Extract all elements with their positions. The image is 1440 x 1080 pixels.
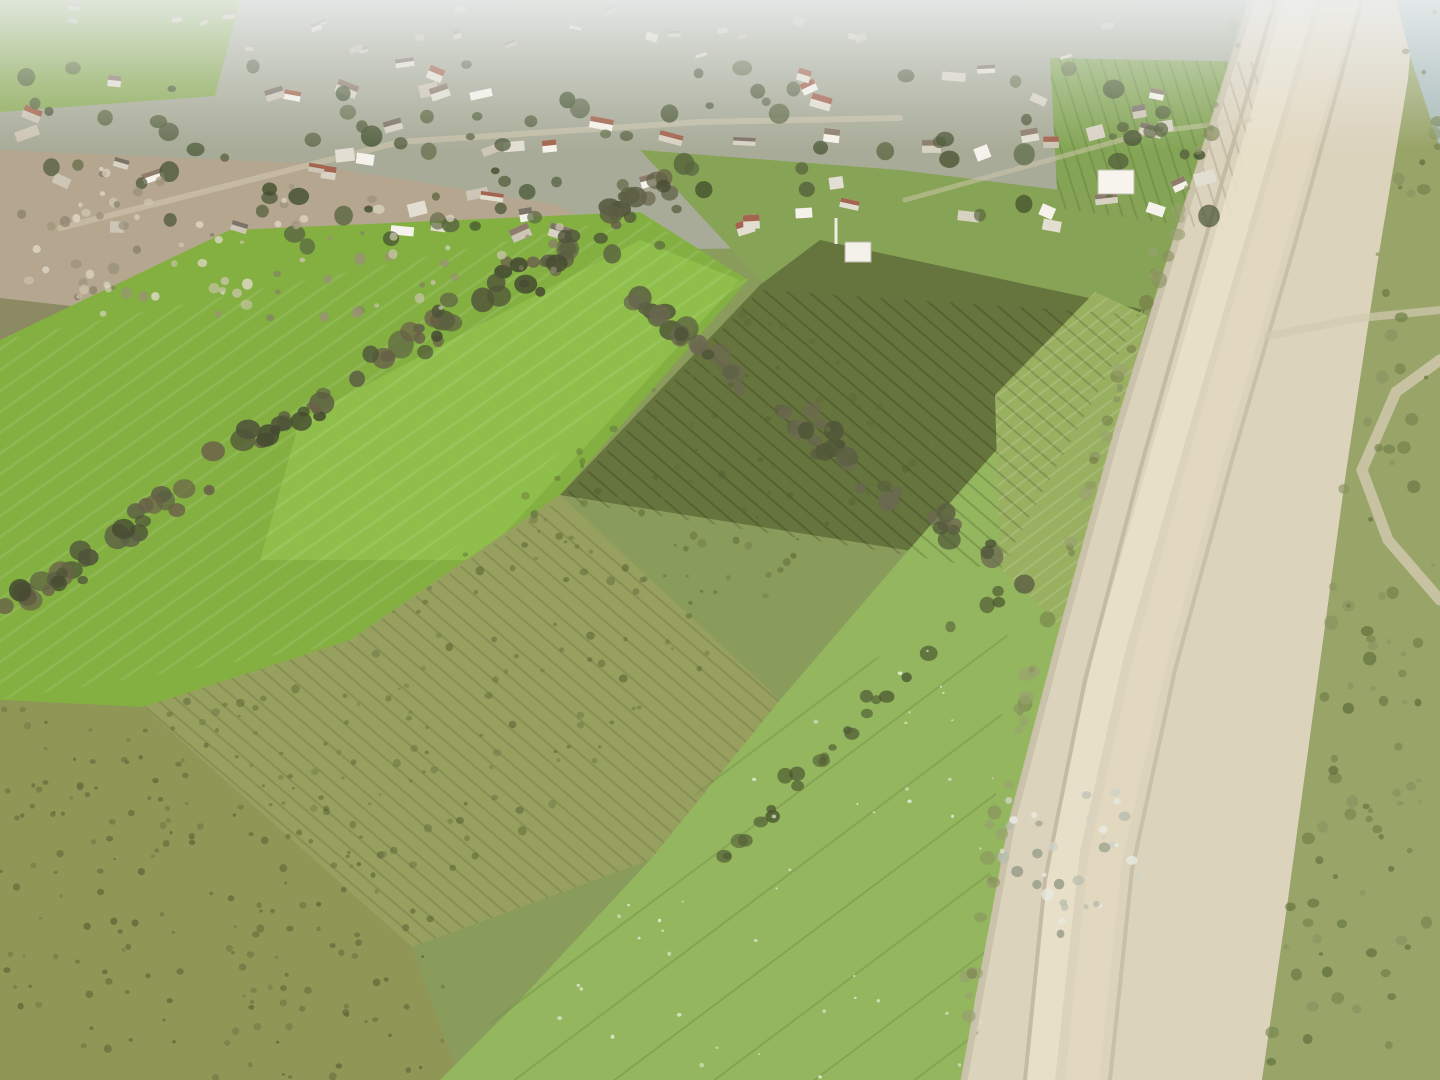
vegetation-blob — [152, 778, 158, 783]
vegetation-blob — [252, 705, 258, 711]
vegetation-blob — [765, 572, 771, 578]
vegetation-blob — [731, 834, 748, 848]
vegetation-blob — [121, 948, 125, 952]
vegetation-blob — [100, 311, 107, 317]
vegetation-blob — [1312, 934, 1322, 943]
vegetation-blob — [440, 259, 450, 267]
vegetation-blob — [920, 646, 938, 661]
vegetation-blob — [20, 813, 24, 817]
vegetation-blob — [1386, 639, 1391, 644]
vegetation-blob — [112, 519, 135, 539]
vegetation-blob — [357, 703, 360, 707]
vegetation-blob — [548, 800, 556, 809]
vegetation-blob — [165, 806, 171, 811]
vegetation-blob — [527, 211, 542, 224]
vegetation-blob — [1073, 875, 1084, 885]
vegetation-blob — [390, 847, 398, 854]
vegetation-blob — [1089, 457, 1098, 465]
vegetation-blob — [813, 754, 831, 767]
vegetation-blob — [1379, 834, 1384, 840]
vegetation-blob — [299, 902, 306, 909]
vegetation-blob — [521, 542, 528, 547]
vegetation-blob — [624, 211, 636, 222]
vegetation-blob — [185, 802, 189, 805]
vegetation-blob — [178, 242, 184, 247]
vegetation-blob — [713, 590, 718, 594]
vegetation-blob — [554, 476, 561, 481]
vegetation-blob — [114, 201, 120, 208]
vegetation-blob — [587, 657, 592, 662]
vegetation-blob — [292, 221, 301, 230]
vegetation-blob — [288, 1075, 292, 1078]
vegetation-blob — [352, 953, 359, 959]
vegetation-blob — [898, 672, 903, 675]
vegetation-blob — [189, 833, 195, 840]
vegetation-blob — [431, 766, 438, 773]
vegetation-blob — [778, 343, 785, 349]
vegetation-blob — [974, 912, 987, 922]
vegetation-blob — [866, 420, 874, 426]
vegetation-blob — [406, 1067, 412, 1073]
vegetation-blob — [718, 471, 726, 479]
house — [743, 214, 760, 229]
vegetation-blob — [589, 550, 594, 555]
vegetation-blob — [18, 1003, 24, 1010]
vegetation-blob — [563, 577, 569, 582]
vegetation-blob — [89, 759, 95, 764]
vegetation-blob — [464, 802, 468, 806]
vegetation-blob — [316, 902, 321, 907]
vegetation-blob — [9, 579, 32, 602]
vegetation-blob — [336, 750, 341, 755]
vegetation-blob — [1366, 948, 1377, 957]
vegetation-blob — [30, 863, 36, 868]
vegetation-blob — [364, 1020, 367, 1023]
vegetation-blob — [958, 1063, 961, 1066]
vegetation-blob — [138, 755, 143, 760]
vegetation-blob — [1099, 842, 1111, 852]
vegetation-blob — [623, 637, 627, 641]
vegetation-blob — [310, 805, 317, 812]
vegetation-blob — [1379, 696, 1389, 706]
vegetation-blob — [487, 274, 506, 292]
vegetation-blob — [147, 796, 151, 800]
vegetation-blob — [72, 159, 83, 170]
vegetation-blob — [210, 233, 215, 237]
vegetation-blob — [577, 712, 584, 719]
vegetation-blob — [1110, 788, 1120, 796]
vegetation-blob — [133, 187, 143, 196]
vegetation-blob — [162, 1019, 166, 1022]
vegetation-blob — [42, 780, 48, 785]
vegetation-blob — [78, 202, 83, 207]
vegetation-blob — [966, 967, 977, 978]
vegetation-blob — [173, 479, 195, 498]
vegetation-blob — [637, 706, 642, 710]
vegetation-blob — [682, 901, 684, 903]
vegetation-blob — [825, 521, 830, 526]
vegetation-blob — [493, 749, 502, 756]
vegetation-blob — [638, 509, 645, 516]
vegetation-blob — [1324, 615, 1338, 630]
vegetation-blob — [1042, 873, 1046, 877]
vegetation-blob — [877, 999, 880, 1003]
vegetation-blob — [1108, 153, 1129, 170]
vegetation-blob — [125, 990, 130, 994]
vegetation-blob — [791, 781, 804, 792]
vegetation-blob — [374, 889, 378, 894]
vegetation-blob — [334, 206, 353, 226]
vegetation-blob — [677, 1013, 682, 1017]
vegetation-blob — [102, 169, 111, 178]
vegetation-blob — [995, 828, 1008, 839]
vegetation-blob — [726, 575, 731, 580]
vegetation-blob — [1385, 1041, 1393, 1049]
vegetation-blob — [962, 1009, 976, 1022]
vegetation-blob — [164, 213, 177, 227]
vegetation-blob — [1303, 918, 1314, 927]
vegetation-blob — [232, 288, 242, 297]
vegetation-blob — [1387, 993, 1396, 1000]
vegetation-blob — [76, 294, 82, 299]
vegetation-blob — [683, 546, 689, 552]
vegetation-blob — [752, 778, 756, 781]
vegetation-blob — [908, 459, 917, 467]
vegetation-blob — [1366, 635, 1376, 643]
vegetation-blob — [557, 1016, 562, 1020]
vegetation-blob — [535, 287, 545, 297]
vegetation-blob — [822, 1009, 826, 1013]
vegetation-blob — [771, 465, 775, 469]
vegetation-blob — [495, 203, 507, 214]
vegetation-blob — [940, 686, 942, 688]
vegetation-blob — [661, 930, 664, 932]
vegetation-blob — [796, 538, 799, 540]
vegetation-blob — [1395, 312, 1408, 322]
vegetation-blob — [1362, 804, 1369, 809]
vegetation-blob — [138, 291, 149, 302]
vegetation-blob — [577, 722, 584, 729]
vegetation-blob — [276, 1041, 279, 1044]
vegetation-blob — [1291, 968, 1302, 980]
vegetation-blob — [594, 233, 608, 244]
vegetation-blob — [409, 779, 412, 782]
vegetation-blob — [484, 692, 492, 699]
vegetation-blob — [1395, 363, 1406, 374]
vegetation-blob — [451, 273, 459, 281]
vegetation-blob — [102, 970, 108, 974]
vegetation-blob — [848, 498, 855, 506]
vegetation-blob — [201, 441, 225, 461]
vegetation-blob — [989, 878, 995, 884]
vegetation-blob — [1151, 272, 1167, 289]
vegetation-blob — [641, 191, 656, 205]
vegetation-blob — [285, 834, 291, 840]
vegetation-blob — [97, 868, 104, 873]
vegetation-blob — [525, 235, 530, 239]
vegetation-blob — [232, 1027, 239, 1035]
vegetation-blob — [1407, 190, 1416, 198]
vegetation-blob — [1388, 866, 1394, 872]
vegetation-blob — [1009, 816, 1018, 824]
vegetation-blob — [1086, 816, 1094, 823]
vegetation-blob — [1112, 363, 1128, 377]
vegetation-blob — [97, 889, 104, 895]
vegetation-blob — [204, 743, 209, 748]
vegetation-blob — [316, 927, 320, 932]
vegetation-blob — [24, 722, 31, 729]
vegetation-blob — [684, 449, 690, 453]
vegetation-blob — [425, 750, 429, 754]
vegetation-blob — [166, 711, 173, 716]
vegetation-blob — [445, 245, 450, 250]
vegetation-blob — [685, 613, 692, 619]
vegetation-blob — [341, 776, 345, 779]
vegetation-blob — [945, 621, 955, 632]
vegetation-blob — [1381, 969, 1391, 977]
vegetation-blob — [553, 750, 557, 753]
vegetation-blob — [415, 293, 425, 303]
vegetation-blob — [299, 258, 305, 263]
vegetation-blob — [835, 360, 840, 364]
vegetation-blob — [765, 416, 772, 422]
vegetation-blob — [980, 1021, 982, 1023]
vegetation-blob — [1031, 812, 1037, 818]
vegetation-blob — [1401, 651, 1407, 657]
vegetation-blob — [699, 1063, 704, 1068]
vegetation-blob — [617, 914, 620, 918]
vegetation-blob — [510, 257, 528, 272]
vegetation-blob — [1019, 717, 1029, 727]
vegetation-blob — [803, 402, 821, 419]
vegetation-blob — [286, 926, 293, 932]
vegetation-blob — [491, 167, 500, 174]
vegetation-blob — [14, 815, 20, 820]
vegetation-blob — [818, 1075, 822, 1078]
vegetation-blob — [220, 154, 229, 162]
vegetation-blob — [42, 266, 49, 273]
vegetation-blob — [431, 331, 443, 342]
vegetation-blob — [1032, 849, 1043, 859]
vegetation-blob — [280, 985, 287, 991]
vegetation-blob — [248, 1062, 253, 1067]
vegetation-blob — [633, 588, 640, 595]
vegetation-blob — [537, 530, 540, 533]
vegetation-blob — [288, 188, 309, 205]
vegetation-blob — [1, 707, 8, 713]
vegetation-blob — [360, 231, 364, 235]
vegetation-blob — [247, 951, 255, 957]
vegetation-blob — [464, 835, 470, 841]
vegetation-blob — [518, 826, 527, 835]
vegetation-blob — [233, 925, 237, 928]
vegetation-blob — [1057, 930, 1065, 938]
vegetation-blob — [1082, 791, 1091, 799]
vegetation-blob — [89, 1026, 93, 1030]
vegetation-blob — [652, 388, 656, 392]
vegetation-blob — [410, 908, 415, 913]
vegetation-blob — [172, 931, 176, 934]
vegetation-blob — [346, 855, 350, 858]
vegetation-blob — [1343, 703, 1354, 714]
vegetation-blob — [336, 1063, 343, 1068]
vegetation-blob — [580, 500, 587, 507]
vegetation-blob — [744, 319, 751, 327]
vegetation-blob — [61, 812, 65, 816]
vegetation-blob — [463, 552, 468, 556]
vegetation-blob — [758, 1053, 760, 1055]
vegetation-blob — [70, 260, 81, 269]
vegetation-blob — [1184, 185, 1190, 190]
vegetation-blob — [844, 728, 859, 740]
vegetation-blob — [671, 647, 674, 650]
vegetation-blob — [514, 275, 537, 294]
vegetation-blob — [105, 978, 112, 985]
vegetation-blob — [901, 672, 911, 682]
vegetation-blob — [421, 955, 424, 958]
vegetation-blob — [238, 715, 241, 717]
vegetation-blob — [128, 810, 135, 816]
vegetation-blob — [362, 345, 378, 362]
vegetation-blob — [13, 985, 17, 989]
vegetation-blob — [406, 716, 412, 721]
vegetation-blob — [805, 431, 813, 440]
vegetation-blob — [299, 1006, 305, 1012]
vegetation-blob — [374, 303, 379, 307]
vegetation-blob — [414, 332, 425, 344]
vegetation-blob — [256, 924, 264, 932]
vegetation-blob — [47, 222, 56, 231]
vegetation-blob — [199, 719, 206, 726]
vegetation-blob — [1013, 704, 1025, 714]
vegetation-blob — [1117, 384, 1123, 390]
vegetation-blob — [579, 458, 585, 464]
vegetation-blob — [285, 1023, 293, 1031]
vegetation-blob — [603, 244, 621, 263]
vegetation-blob — [1397, 441, 1411, 454]
vegetation-blob — [282, 1073, 285, 1076]
house — [795, 208, 812, 219]
vegetation-blob — [253, 1023, 261, 1031]
vegetation-blob — [269, 803, 273, 806]
vegetation-blob — [144, 495, 163, 514]
vegetation-blob — [1148, 248, 1158, 257]
vegetation-blob — [992, 778, 994, 780]
vegetation-blob — [172, 1040, 176, 1043]
vegetation-blob — [756, 516, 759, 519]
vegetation-blob — [1368, 517, 1373, 521]
vegetation-blob — [1360, 890, 1366, 896]
vegetation-blob — [514, 654, 519, 659]
vegetation-blob — [182, 773, 188, 778]
vegetation-blob — [598, 660, 606, 668]
vegetation-blob — [248, 832, 253, 836]
vegetation-blob — [1015, 726, 1023, 734]
vegetation-blob — [656, 180, 671, 193]
vegetation-blob — [1283, 944, 1289, 949]
vegetation-blob — [81, 209, 90, 217]
vegetation-blob — [410, 745, 418, 752]
vegetation-blob — [121, 287, 132, 299]
vegetation-blob — [5, 788, 11, 793]
vegetation-blob — [491, 636, 497, 642]
vegetation-blob — [43, 158, 60, 176]
vegetation-blob — [808, 338, 815, 344]
vegetation-blob — [1416, 778, 1422, 783]
vegetation-blob — [504, 669, 509, 674]
vegetation-blob — [424, 824, 432, 832]
vegetation-blob — [816, 397, 823, 404]
vegetation-blob — [875, 403, 884, 410]
vegetation-blob — [409, 861, 417, 868]
vegetation-blob — [354, 933, 360, 938]
vegetation-blob — [372, 650, 381, 658]
vegetation-blob — [580, 569, 588, 576]
vegetation-blob — [215, 310, 222, 317]
vegetation-blob — [606, 576, 615, 585]
vegetation-blob — [373, 205, 385, 214]
vegetation-blob — [1126, 856, 1137, 865]
vegetation-blob — [1405, 944, 1411, 950]
vegetation-blob — [788, 869, 791, 872]
vegetation-blob — [733, 537, 740, 545]
vegetation-blob — [236, 699, 245, 708]
vegetation-blob — [266, 314, 274, 321]
vegetation-blob — [567, 745, 571, 749]
vegetation-blob — [684, 161, 699, 176]
vegetation-blob — [609, 720, 614, 724]
vegetation-blob — [728, 383, 734, 388]
vegetation-blob — [768, 491, 771, 494]
vegetation-blob — [224, 1040, 231, 1046]
vegetation-blob — [239, 964, 247, 971]
vegetation-blob — [1374, 444, 1382, 452]
vegetation-blob — [776, 366, 780, 370]
vegetation-blob — [77, 576, 88, 584]
vegetation-blob — [349, 371, 365, 388]
vegetation-blob — [697, 539, 706, 548]
vegetation-blob — [72, 214, 80, 223]
vegetation-blob — [56, 850, 63, 857]
vegetation-blob — [598, 745, 602, 748]
vegetation-blob — [372, 1017, 378, 1022]
vegetation-blob — [738, 311, 746, 319]
vegetation-blob — [171, 260, 177, 267]
vegetation-blob — [125, 944, 131, 950]
vegetation-blob — [270, 909, 275, 914]
vegetation-blob — [985, 539, 996, 548]
vegetation-blob — [1040, 611, 1056, 627]
vegetation-blob — [408, 710, 412, 714]
vegetation-blob — [33, 245, 41, 253]
vegetation-blob — [715, 1046, 718, 1049]
vegetation-blob — [151, 854, 156, 858]
vegetation-blob — [380, 851, 387, 858]
vegetation-blob — [261, 837, 269, 845]
vegetation-blob — [215, 728, 219, 732]
vegetation-blob — [527, 256, 540, 267]
vegetation-blob — [688, 601, 693, 605]
vegetation-blob — [479, 734, 483, 737]
vegetation-blob — [233, 813, 236, 816]
vegetation-blob — [716, 366, 720, 370]
vegetation-blob — [42, 585, 55, 596]
vegetation-blob — [854, 997, 857, 999]
vegetation-blob — [238, 805, 244, 810]
vegetation-blob — [908, 711, 911, 714]
vegetation-blob — [440, 1039, 444, 1043]
vegetation-blob — [1328, 766, 1338, 775]
